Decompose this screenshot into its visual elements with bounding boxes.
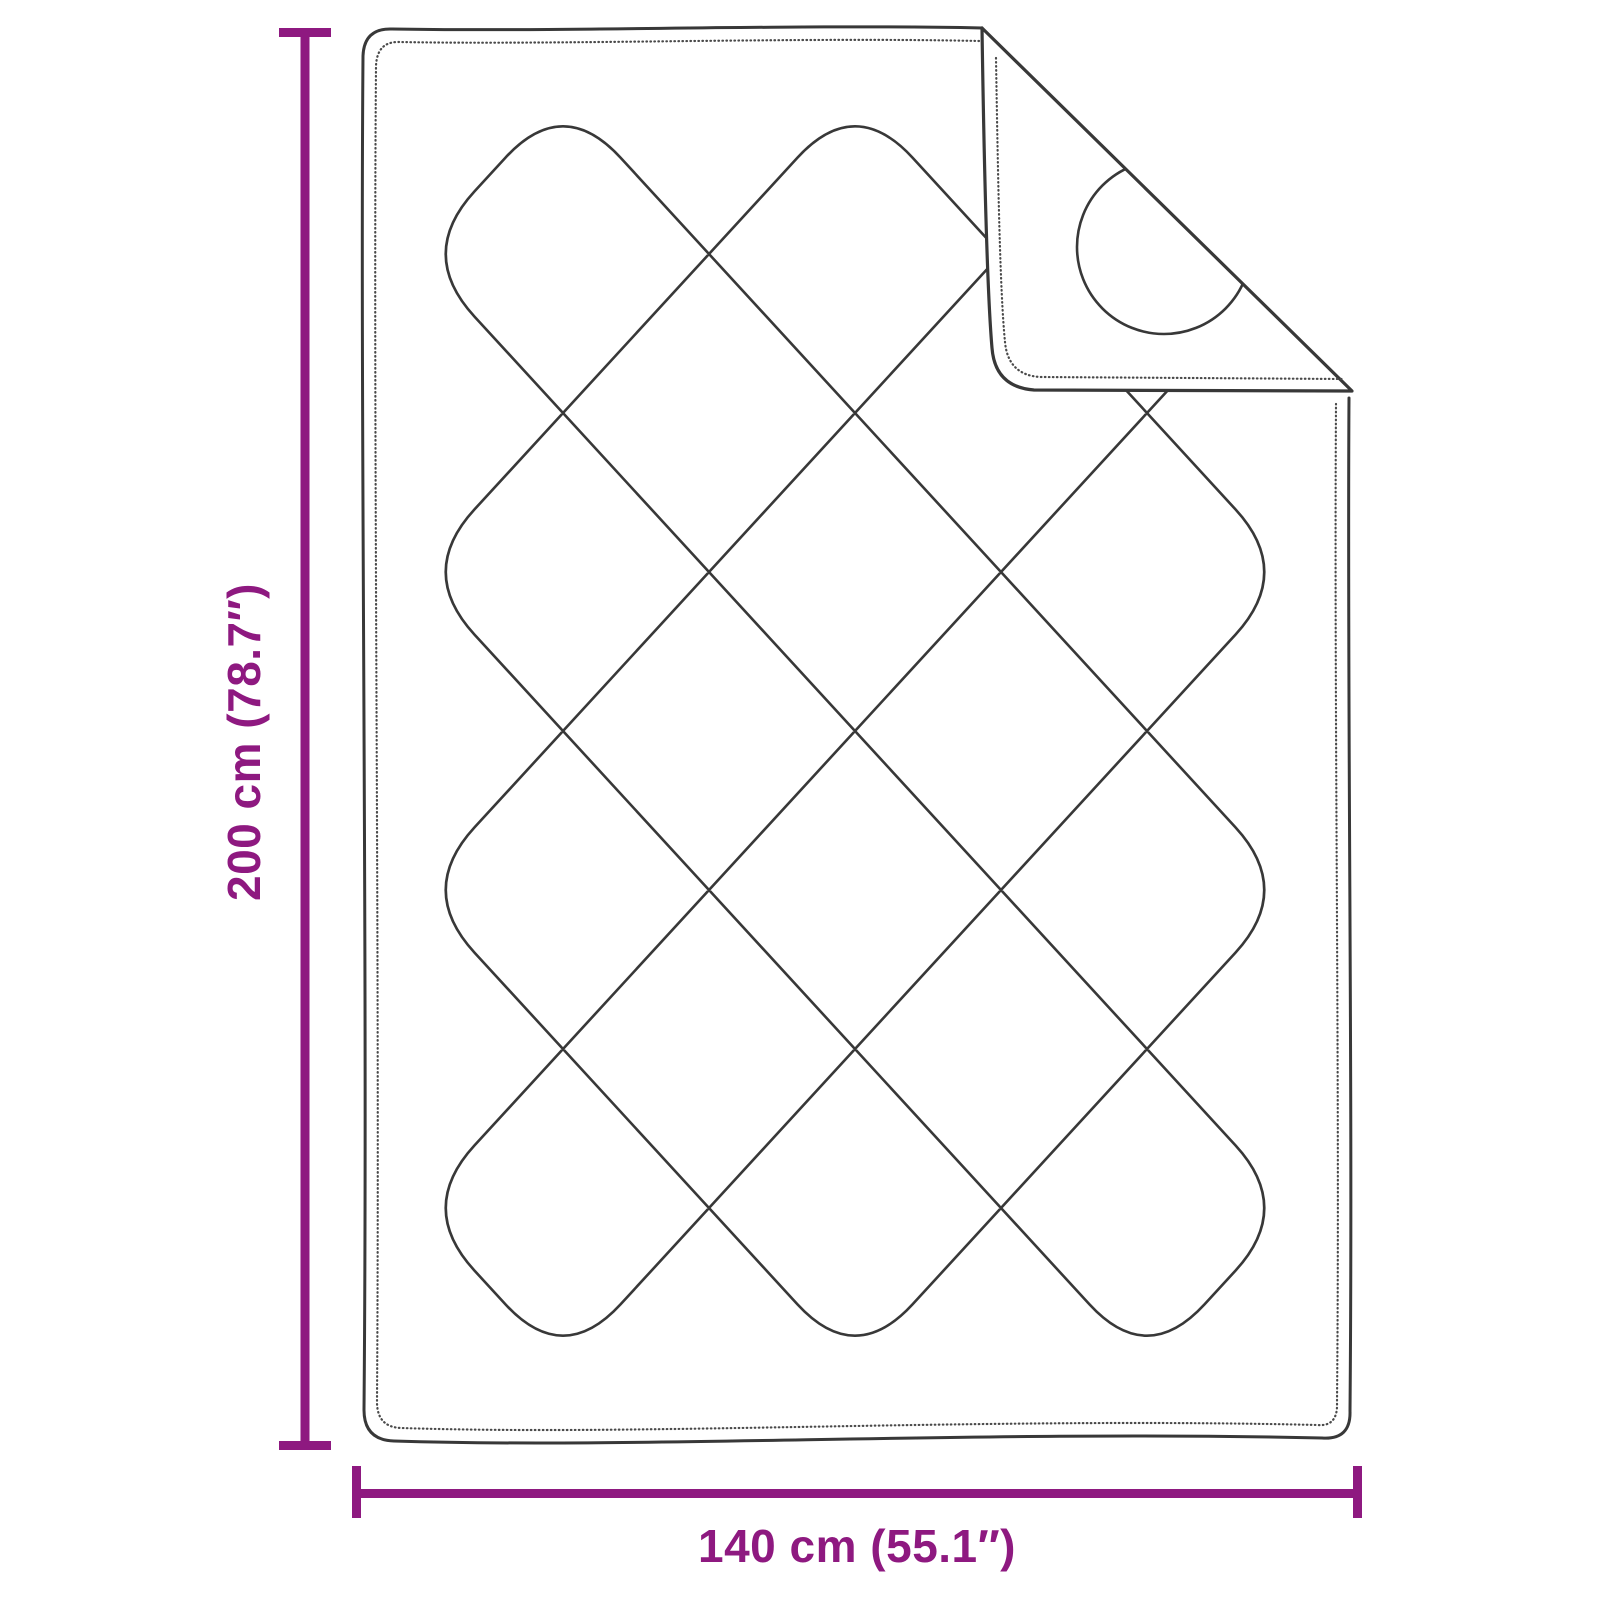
height-dimension-line: [301, 28, 310, 1450]
width-dimension-label: 140 cm (55.1″): [698, 1520, 1016, 1572]
fold-flap: [982, 28, 1352, 391]
width-dimension-line: [356, 1489, 1358, 1498]
height-dimension-top-tick: [279, 28, 331, 37]
quilt-pattern: [446, 126, 1265, 1335]
blanket-stitch-line: [375, 40, 1338, 1430]
width-dimension: 140 cm (55.1″): [352, 1466, 1362, 1572]
height-dimension: 200 cm (78.7″): [218, 28, 331, 1450]
blanket-outline: [362, 27, 1351, 1443]
width-dimension-left-tick: [352, 1466, 361, 1518]
fold-circle-stitch: [1077, 160, 1251, 334]
product-dimension-diagram: 200 cm (78.7″) 140 cm (55.1″): [0, 0, 1600, 1600]
diagram-canvas: 200 cm (78.7″) 140 cm (55.1″): [0, 0, 1600, 1600]
blanket-drawing: [362, 27, 1352, 1443]
height-dimension-bottom-tick: [279, 1441, 331, 1450]
folded-corner: [982, 28, 1352, 391]
height-dimension-label: 200 cm (78.7″): [218, 583, 270, 901]
width-dimension-right-tick: [1353, 1466, 1362, 1518]
